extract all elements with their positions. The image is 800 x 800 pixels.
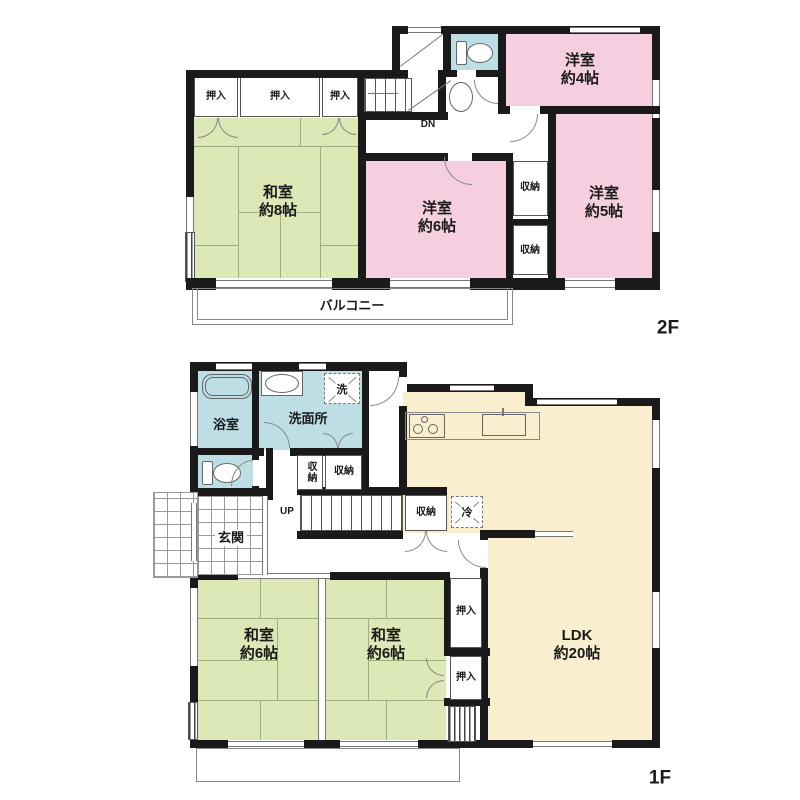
- washing-machine-icon: 洗: [324, 373, 360, 404]
- closet-label: 押入: [206, 91, 226, 103]
- stairs-1f: [300, 495, 403, 531]
- toilet-tank-icon: [456, 41, 467, 65]
- wall: [444, 648, 490, 656]
- room-ldk-kitchen: [533, 406, 652, 533]
- stove-burner: [421, 416, 428, 423]
- window: [533, 741, 612, 747]
- wall: [652, 26, 660, 290]
- wall: [186, 70, 408, 78]
- entrance-step: [262, 496, 268, 575]
- terrace: [196, 748, 460, 782]
- wall: [480, 530, 488, 540]
- window: [450, 385, 494, 391]
- room-label-yoshitsu6: 洋室約6帖: [418, 200, 456, 236]
- wall: [498, 106, 510, 114]
- door-arc: [405, 531, 426, 552]
- stair-diagonal: [400, 31, 447, 67]
- door-arc: [510, 114, 538, 142]
- tatami-line: [386, 700, 387, 740]
- storage-label: 収納: [520, 182, 540, 194]
- window: [652, 592, 660, 648]
- pass-through-window: [535, 531, 573, 537]
- tatami-line: [194, 146, 358, 147]
- entrance-label: 玄関: [215, 530, 247, 546]
- wall: [548, 106, 556, 278]
- room-label-yoshitsu4: 洋室約4帖: [561, 52, 599, 88]
- storage-label: 収納: [304, 461, 316, 483]
- window: [537, 399, 617, 405]
- faucet-icon: [502, 408, 504, 416]
- door-arc: [458, 540, 486, 568]
- window: [299, 363, 326, 370]
- window: [190, 588, 198, 666]
- kitchen-sink-icon: [482, 414, 526, 436]
- storage-label: 収納: [416, 507, 436, 519]
- tatami-line: [320, 245, 358, 246]
- refrigerator-label: 冷: [461, 504, 474, 520]
- door-arc: [370, 377, 399, 406]
- tatami-line: [280, 212, 281, 278]
- tatami-line: [260, 700, 261, 740]
- tatami-line: [386, 578, 387, 618]
- tatami-line: [260, 578, 261, 618]
- wall: [506, 153, 513, 278]
- wall: [392, 26, 400, 74]
- wall: [297, 531, 403, 539]
- window: [565, 280, 615, 288]
- stove-burner: [413, 424, 423, 434]
- wall: [259, 448, 264, 456]
- stair-arrow: [368, 93, 398, 94]
- wall: [399, 371, 407, 377]
- sliding-door: [318, 578, 326, 740]
- closet-label: 押入: [330, 91, 350, 103]
- storage-label: 収納: [334, 466, 354, 478]
- stairs-up-label: UP: [280, 506, 294, 518]
- closet-label: 押入: [456, 672, 476, 684]
- tatami-line: [300, 118, 301, 146]
- toilet-bowl-icon: [467, 43, 493, 63]
- window: [390, 280, 470, 288]
- wall: [198, 448, 259, 455]
- tatami-line: [194, 245, 238, 246]
- wall: [480, 530, 535, 538]
- wall: [358, 153, 448, 161]
- door-arc: [426, 531, 447, 552]
- wall: [506, 219, 548, 225]
- washbasin-icon: [449, 82, 473, 112]
- wall: [362, 371, 369, 450]
- refrigerator-icon: 冷: [451, 496, 483, 528]
- wall: [358, 118, 366, 278]
- window: [228, 741, 304, 747]
- wall: [330, 572, 450, 580]
- laundry-label: 洗: [336, 381, 349, 397]
- room-label-washitsu8: 和室約8帖: [259, 184, 297, 220]
- window: [570, 27, 640, 33]
- window: [652, 420, 660, 468]
- toilet-tank-icon: [202, 461, 213, 485]
- wall: [498, 26, 506, 114]
- wall: [190, 488, 268, 496]
- wall: [252, 371, 259, 448]
- washroom-label: 洗面所: [288, 411, 327, 427]
- room-label-ldk: LDK約20帖: [554, 627, 601, 663]
- entrance-door: [191, 503, 197, 561]
- closet-label: 押入: [270, 91, 290, 103]
- window: [652, 190, 660, 232]
- tatami-line: [320, 146, 321, 278]
- stairs-2f: [364, 78, 412, 112]
- window: [340, 741, 418, 747]
- floor-label-2f: 2F: [657, 318, 679, 341]
- shutter-box: [185, 232, 195, 282]
- floor-label-1f: 1F: [649, 768, 671, 791]
- tatami-line: [322, 700, 446, 701]
- room-label-washitsu-left: 和室約6帖: [240, 627, 278, 663]
- sliding-door: [216, 280, 332, 288]
- stairs-down-label: DN: [421, 119, 435, 131]
- room-label-washitsu-right: 和室約6帖: [367, 627, 405, 663]
- balcony-label: バルコニー: [320, 298, 385, 314]
- tatami-line: [198, 618, 322, 619]
- wall: [540, 106, 660, 114]
- wall: [252, 448, 259, 460]
- door-arc: [474, 80, 498, 104]
- window: [216, 363, 252, 370]
- wall: [304, 740, 340, 748]
- wall: [438, 70, 446, 118]
- stove-burner: [428, 424, 438, 434]
- shutter-box: [188, 702, 198, 740]
- tatami-line: [322, 618, 446, 619]
- window: [186, 197, 194, 232]
- window: [408, 27, 441, 33]
- shutter-box: [448, 706, 476, 742]
- window: [190, 392, 198, 446]
- closet-label: 押入: [456, 606, 476, 618]
- room-label-yoshitsu5: 洋室約5帖: [585, 185, 623, 221]
- floor-plan: 和室約8帖 洋室約6帖 洋室約5帖 洋室約4帖 押入 押入 押入 収納 収納 D…: [0, 0, 800, 800]
- wall: [615, 278, 660, 290]
- storage-label: 収納: [520, 245, 540, 257]
- bathtub-inner: [205, 377, 249, 396]
- wall: [190, 740, 228, 748]
- bathroom-label: 浴室: [213, 417, 239, 433]
- washbasin-icon: [265, 374, 299, 393]
